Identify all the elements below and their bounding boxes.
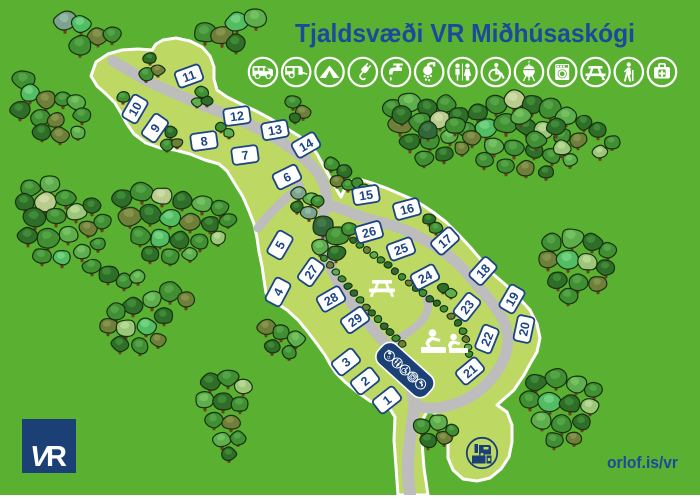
svg-text:13: 13 — [267, 122, 283, 138]
svg-text:R: R — [46, 441, 67, 473]
svg-text:Tjaldsvæði VR Miðhúsaskógi: Tjaldsvæði VR Miðhúsaskógi — [295, 18, 635, 48]
svg-text:20: 20 — [516, 321, 533, 338]
svg-text:orlof.is/vr: orlof.is/vr — [607, 453, 678, 472]
svg-text:12: 12 — [229, 109, 245, 125]
svg-text:15: 15 — [358, 187, 374, 203]
